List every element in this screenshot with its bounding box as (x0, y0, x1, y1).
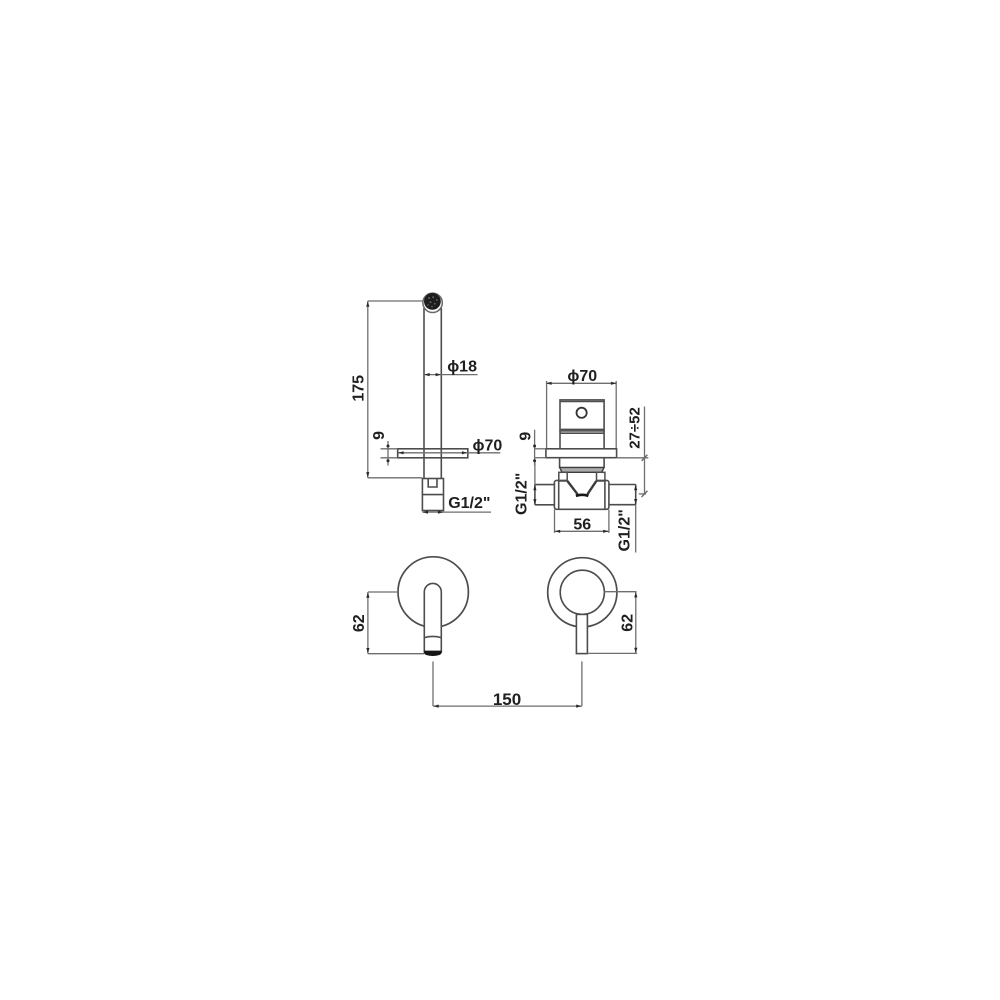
svg-text:ϕ70: ϕ70 (473, 438, 503, 455)
svg-text:56: 56 (573, 517, 591, 534)
svg-text:62: 62 (620, 614, 637, 632)
svg-text:150: 150 (493, 690, 521, 709)
svg-text:ϕ70: ϕ70 (567, 368, 597, 385)
svg-text:9: 9 (518, 432, 535, 441)
svg-text:ϕ18: ϕ18 (447, 359, 477, 376)
svg-text:62: 62 (351, 614, 368, 632)
svg-text:G1/2": G1/2" (616, 509, 633, 551)
svg-text:9: 9 (371, 431, 388, 440)
svg-text:175: 175 (351, 375, 368, 402)
svg-text:27÷52: 27÷52 (626, 407, 643, 449)
svg-text:G1/2": G1/2" (513, 473, 530, 515)
svg-text:G1/2": G1/2" (448, 495, 490, 512)
